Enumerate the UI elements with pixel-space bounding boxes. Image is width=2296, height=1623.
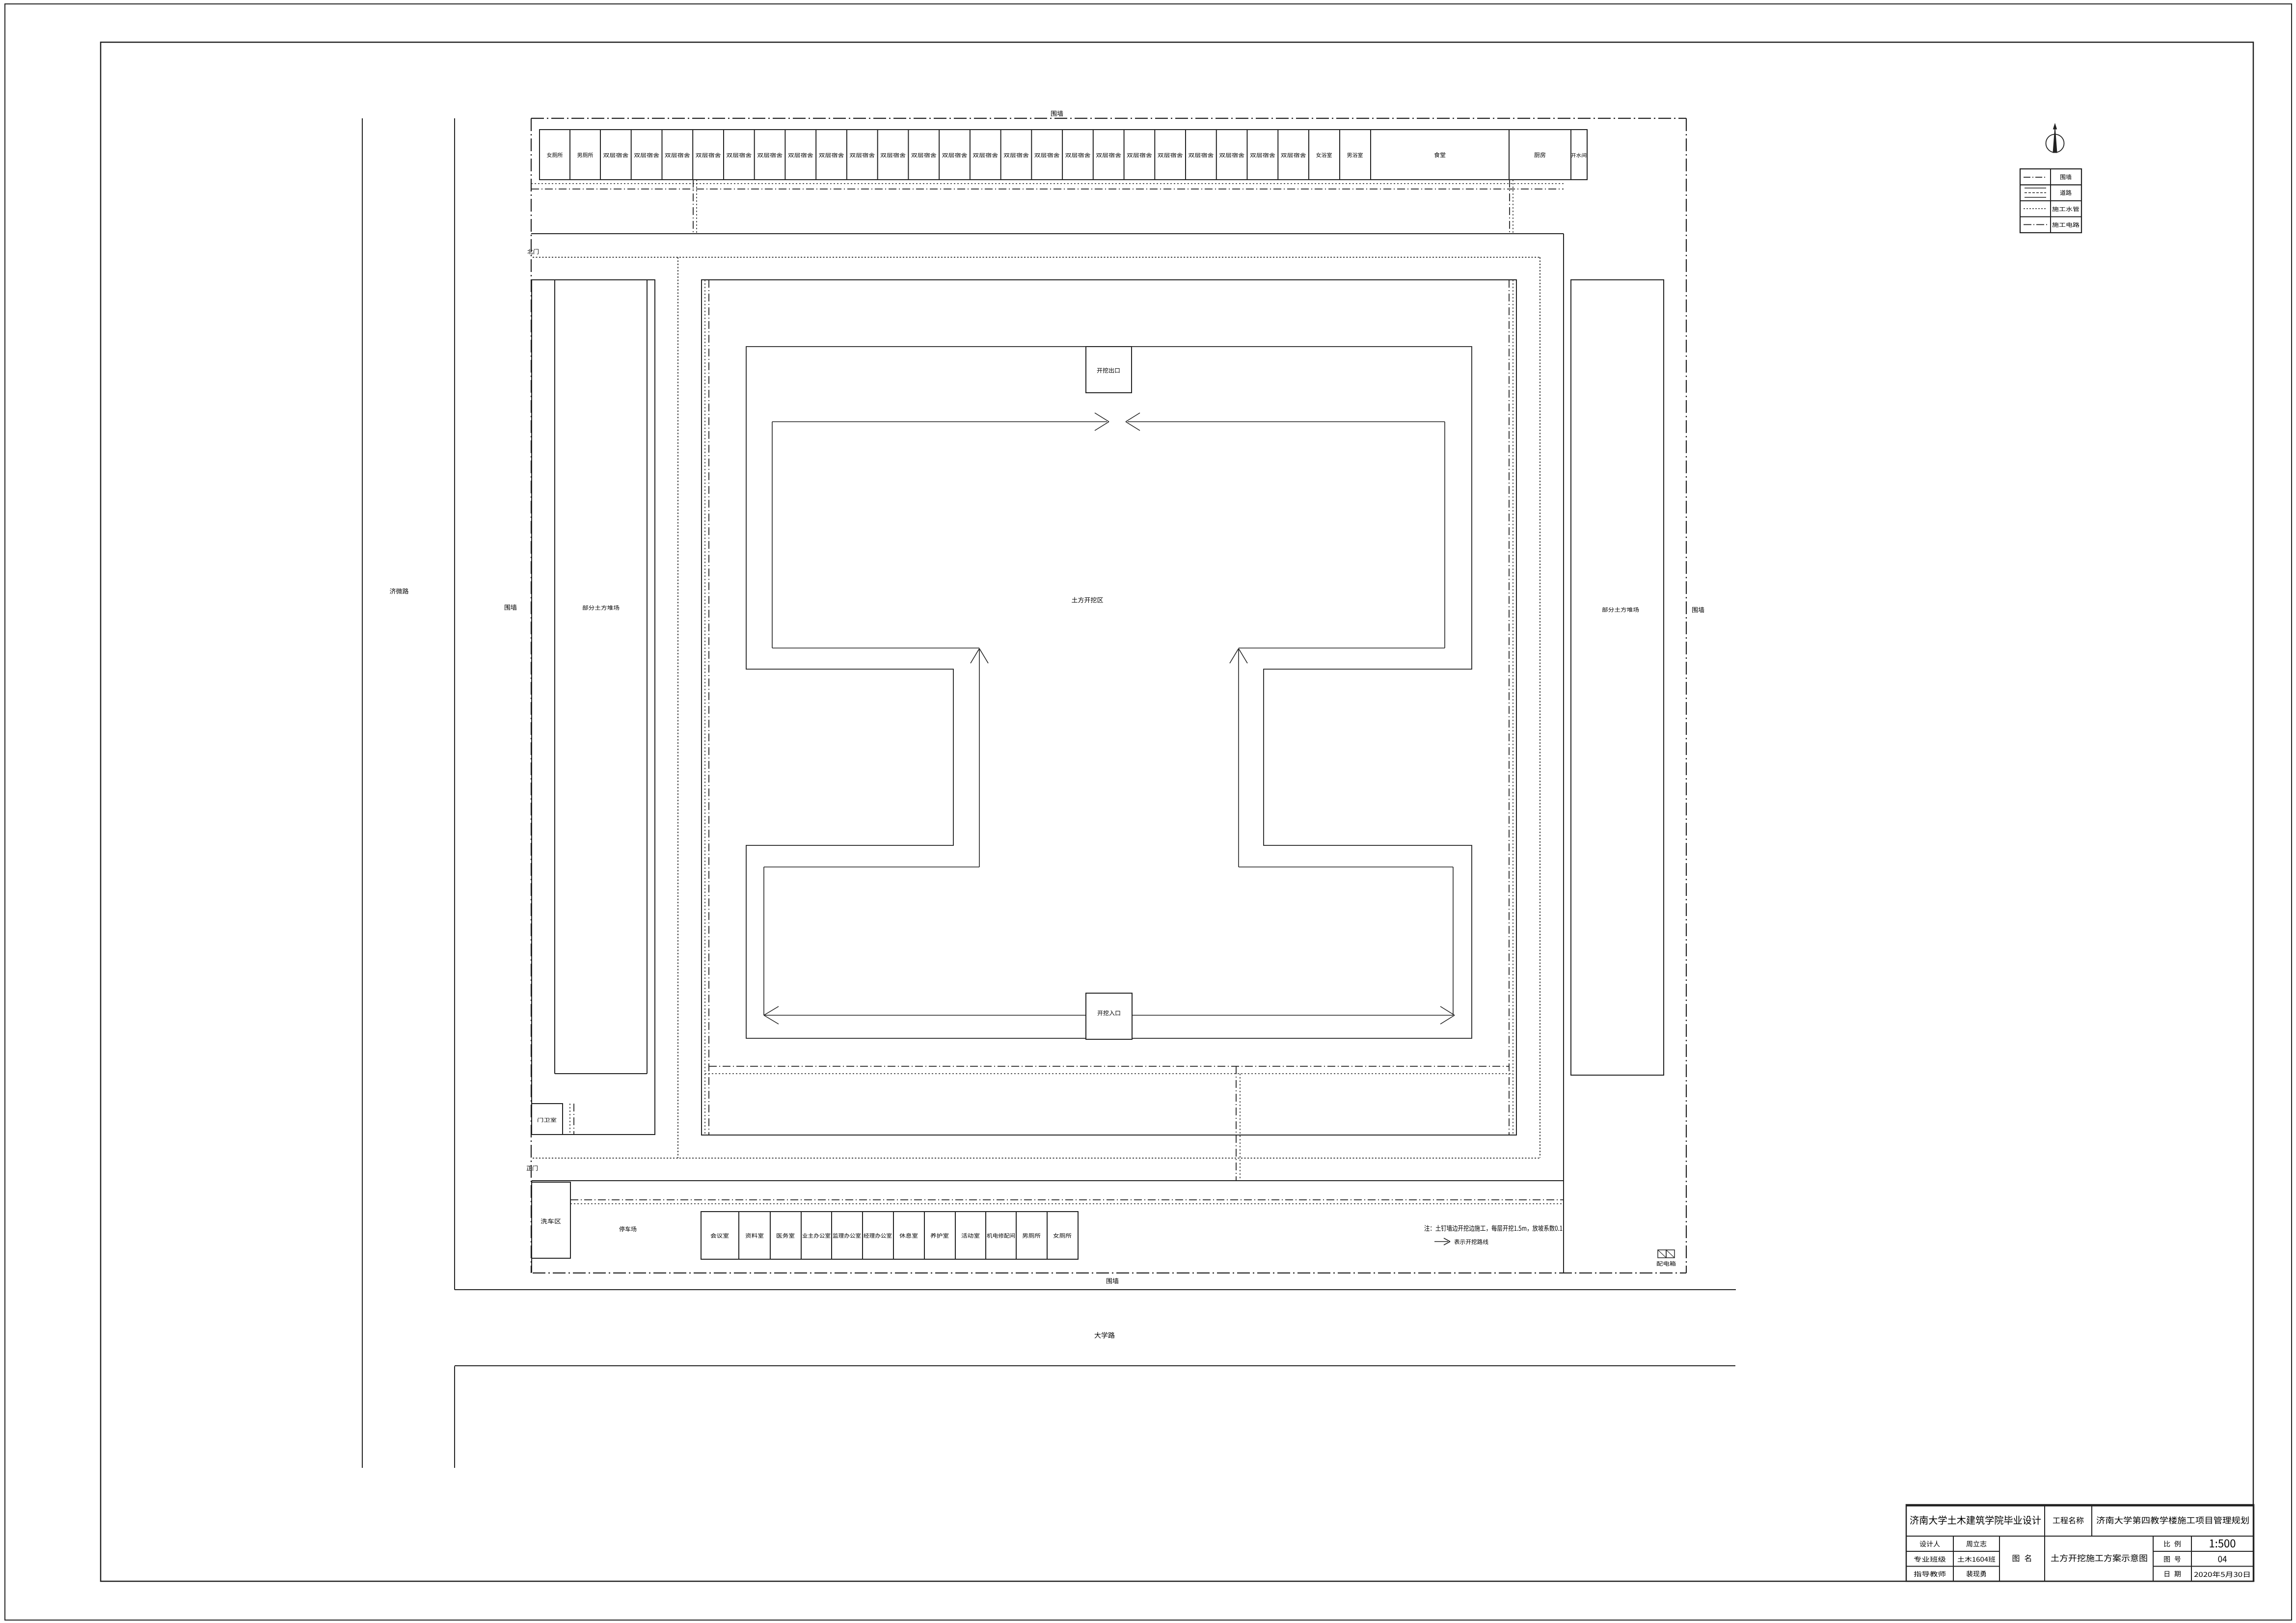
svg-text:正门: 正门 [526, 1164, 538, 1172]
svg-text:工程名称: 工程名称 [2053, 1514, 2084, 1526]
svg-text:双层宿舍: 双层宿舍 [1281, 152, 1307, 159]
svg-text:停车场: 停车场 [619, 1225, 637, 1233]
svg-text:养护室: 养护室 [930, 1232, 949, 1240]
svg-text:双层宿舍: 双层宿舍 [1003, 152, 1029, 159]
svg-text:配电箱: 配电箱 [1656, 1260, 1676, 1268]
svg-text:门卫室: 门卫室 [537, 1116, 557, 1123]
svg-text:济南大学第四教学楼施工项目管理规划: 济南大学第四教学楼施工项目管理规划 [2096, 1514, 2249, 1526]
svg-text:部分土方堆场: 部分土方堆场 [1602, 606, 1639, 614]
svg-text:双层宿舍: 双层宿舍 [819, 152, 845, 159]
svg-text:大学路: 大学路 [1094, 1330, 1115, 1340]
svg-text:设计人: 设计人 [1919, 1539, 1940, 1549]
svg-text:图 号: 图 号 [2163, 1554, 2181, 1564]
svg-text:表示开挖路线: 表示开挖路线 [1454, 1238, 1488, 1246]
svg-text:男厕所: 男厕所 [1022, 1232, 1041, 1240]
svg-text:双层宿舍: 双层宿舍 [972, 152, 999, 159]
svg-text:土方开挖区: 土方开挖区 [1071, 595, 1103, 604]
svg-text:食堂: 食堂 [1434, 151, 1446, 159]
svg-text:双层宿舍: 双层宿舍 [788, 152, 814, 159]
svg-text:专业班级: 专业班级 [1914, 1554, 1946, 1564]
svg-text:资料室: 资料室 [745, 1232, 764, 1240]
svg-text:注：土钉墙边开挖边施工，每层开挖1.5m，放坡系数0.1: 注：土钉墙边开挖边施工，每层开挖1.5m，放坡系数0.1 [1424, 1223, 1563, 1233]
svg-text:围墙: 围墙 [1051, 108, 1063, 118]
svg-text:厨房: 厨房 [1534, 151, 1546, 159]
svg-text:双层宿舍: 双层宿舍 [1188, 152, 1214, 159]
svg-text:洗车区: 洗车区 [540, 1217, 561, 1225]
svg-text:会议室: 会议室 [710, 1232, 729, 1240]
svg-text:1:500: 1:500 [2209, 1535, 2236, 1551]
svg-text:施工水管: 施工水管 [2052, 205, 2080, 213]
svg-text:开挖入口: 开挖入口 [1097, 1009, 1121, 1017]
svg-text:双层宿舍: 双层宿舍 [757, 152, 783, 159]
svg-text:双层宿舍: 双层宿舍 [849, 152, 875, 159]
svg-text:双层宿舍: 双层宿舍 [1158, 152, 1184, 159]
svg-text:2020年5月30日: 2020年5月30日 [2194, 1569, 2251, 1579]
svg-text:双层宿舍: 双层宿舍 [603, 152, 629, 159]
svg-text:女厕所: 女厕所 [547, 151, 563, 159]
svg-text:围墙: 围墙 [2060, 173, 2072, 181]
svg-text:比 例: 比 例 [2163, 1539, 2181, 1549]
svg-text:开水间: 开水间 [1571, 151, 1587, 159]
svg-text:女浴室: 女浴室 [1316, 151, 1332, 159]
svg-text:围墙: 围墙 [504, 602, 517, 612]
svg-text:图 名: 图 名 [2012, 1552, 2032, 1564]
svg-text:双层宿舍: 双层宿舍 [1034, 152, 1060, 159]
svg-text:日 期: 日 期 [2163, 1569, 2181, 1579]
svg-text:医务室: 医务室 [776, 1232, 795, 1240]
svg-text:施工电路: 施工电路 [2052, 221, 2080, 229]
svg-text:双层宿舍: 双层宿舍 [880, 152, 906, 159]
svg-text:围墙: 围墙 [1692, 605, 1704, 614]
svg-text:监理办公室: 监理办公室 [833, 1232, 861, 1240]
svg-text:济南大学土木建筑学院毕业设计: 济南大学土木建筑学院毕业设计 [1910, 1513, 2041, 1527]
svg-text:开挖出口: 开挖出口 [1097, 366, 1120, 375]
svg-text:双层宿舍: 双层宿舍 [1219, 152, 1245, 159]
svg-text:活动室: 活动室 [961, 1232, 980, 1240]
svg-text:周立志: 周立志 [1966, 1539, 1987, 1549]
svg-text:休息室: 休息室 [899, 1232, 918, 1240]
svg-text:道路: 道路 [2060, 189, 2072, 197]
svg-text:围墙: 围墙 [1106, 1276, 1119, 1285]
svg-text:女厕所: 女厕所 [1053, 1232, 1072, 1240]
svg-text:指导教师: 指导教师 [1914, 1569, 1946, 1578]
svg-text:双层宿舍: 双层宿舍 [726, 152, 752, 159]
svg-text:业主办公室: 业主办公室 [802, 1232, 831, 1240]
svg-text:男厕所: 男厕所 [577, 151, 594, 159]
svg-text:部分土方堆场: 部分土方堆场 [582, 604, 620, 612]
svg-text:双层宿舍: 双层宿舍 [1065, 152, 1091, 159]
svg-text:土木1604班: 土木1604班 [1957, 1554, 1996, 1564]
svg-text:土方开挖施工方案示意图: 土方开挖施工方案示意图 [2051, 1551, 2148, 1564]
svg-text:双层宿舍: 双层宿舍 [696, 152, 722, 159]
svg-text:双层宿舍: 双层宿舍 [665, 152, 691, 159]
svg-text:经理办公室: 经理办公室 [864, 1232, 892, 1240]
svg-text:双层宿舍: 双层宿舍 [1250, 152, 1276, 159]
svg-text:双层宿舍: 双层宿舍 [942, 152, 968, 159]
svg-text:济微路: 济微路 [389, 586, 408, 595]
svg-text:双层宿舍: 双层宿舍 [1096, 152, 1122, 159]
svg-text:男浴室: 男浴室 [1347, 151, 1363, 159]
svg-text:裴现勇: 裴现勇 [1966, 1569, 1987, 1579]
svg-text:北门: 北门 [527, 247, 539, 256]
svg-text:双层宿舍: 双层宿舍 [911, 152, 937, 159]
svg-text:双层宿舍: 双层宿舍 [634, 152, 660, 159]
svg-text:机电修配间: 机电修配间 [987, 1232, 1015, 1240]
svg-text:双层宿舍: 双层宿舍 [1127, 152, 1153, 159]
svg-text:04: 04 [2218, 1552, 2227, 1565]
